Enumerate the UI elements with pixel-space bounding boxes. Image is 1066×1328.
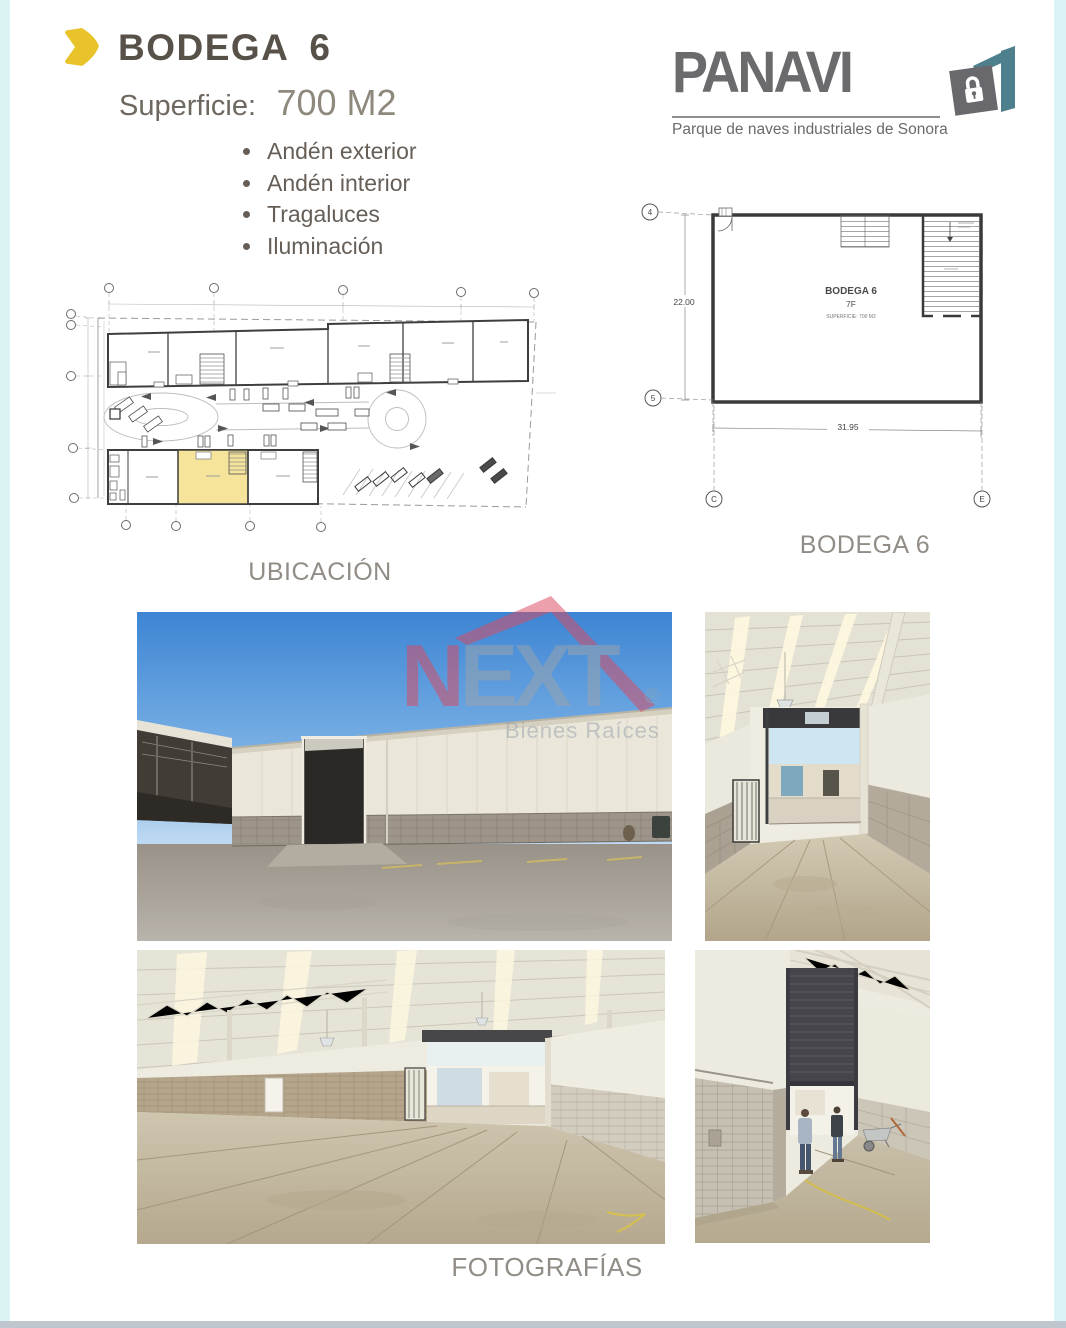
bullet-dot	[243, 243, 250, 250]
dock-trucks-top	[230, 387, 359, 400]
open-door-view	[427, 1042, 547, 1124]
site-plan-drawing	[58, 276, 558, 549]
feature-item: Andén interior	[243, 168, 417, 200]
site-plan-caption: UBICACIÓN	[220, 558, 420, 587]
bullet-dot	[243, 211, 250, 218]
door-opening-view	[769, 728, 861, 824]
page-edge-left	[0, 0, 10, 1328]
feature-label: Andén interior	[267, 170, 410, 197]
bullet-dot	[243, 180, 250, 187]
photo-interior-wide	[137, 950, 665, 1244]
flyer-page: BODEGA6 Superficie: 700 M2 Andén exterio…	[0, 0, 1066, 1328]
panavi-tagline: Parque de naves industriales de Sonora	[672, 121, 948, 139]
logo-divider-line	[672, 116, 940, 118]
rolling-door	[786, 968, 858, 1135]
feature-item: Andén exterior	[243, 136, 417, 168]
dim-bottom-label: 31.95	[837, 422, 859, 432]
feature-item: Iluminación	[243, 231, 417, 263]
photo-interior-dock-view	[705, 612, 930, 941]
grid-marker-4: 4	[648, 208, 653, 217]
parked-trucks	[355, 458, 507, 492]
bullet-dot	[243, 148, 250, 155]
feature-label: Iluminación	[267, 233, 383, 260]
superficie-line: Superficie: 700 M2	[119, 82, 397, 124]
panavi-building-lock-icon	[943, 44, 1025, 129]
floor-plan-caption: BODEGA 6	[765, 531, 965, 560]
dimension-left: 22.00	[667, 215, 702, 400]
photo-exterior-front	[137, 612, 672, 941]
bottom-building	[108, 450, 318, 504]
diagonal-parking	[343, 469, 464, 499]
superficie-label: Superficie:	[119, 90, 256, 122]
page-title: BODEGA6	[118, 27, 331, 69]
title-number: 6	[309, 27, 331, 68]
yellow-arrow-icon	[62, 26, 102, 73]
stairs	[841, 216, 889, 247]
page-edge-right	[1054, 0, 1066, 1328]
features-list: Andén exterior Andén interior Tragaluces…	[243, 136, 417, 262]
grid-marker-e: E	[979, 495, 984, 504]
title-word: BODEGA	[118, 27, 289, 68]
page-edge-bottom	[0, 1321, 1066, 1328]
ramp-area	[923, 215, 981, 320]
grid-marker-c: C	[711, 495, 717, 504]
feature-item: Tragaluces	[243, 199, 417, 231]
dim-left-label: 22.00	[673, 297, 695, 307]
floor-plan-drawing: BODEGA 6 7F SUPERFICIE: 700 M2 4 5 C E	[628, 194, 1040, 519]
photo-interior-rolling-door	[695, 950, 930, 1243]
room-name-label: BODEGA 6	[825, 286, 877, 297]
room-area-label: SUPERFICIE: 700 M2	[826, 314, 876, 320]
superficie-value: 700 M2	[276, 82, 396, 123]
feature-label: Andén exterior	[267, 138, 417, 165]
photos-caption: FOTOGRAFÍAS	[427, 1252, 667, 1283]
dimension-bottom: 31.95	[713, 420, 981, 435]
room-level-label: 7F	[846, 299, 856, 309]
feature-label: Tragaluces	[267, 201, 380, 228]
grid-marker-5: 5	[651, 394, 656, 403]
top-building	[108, 320, 528, 387]
